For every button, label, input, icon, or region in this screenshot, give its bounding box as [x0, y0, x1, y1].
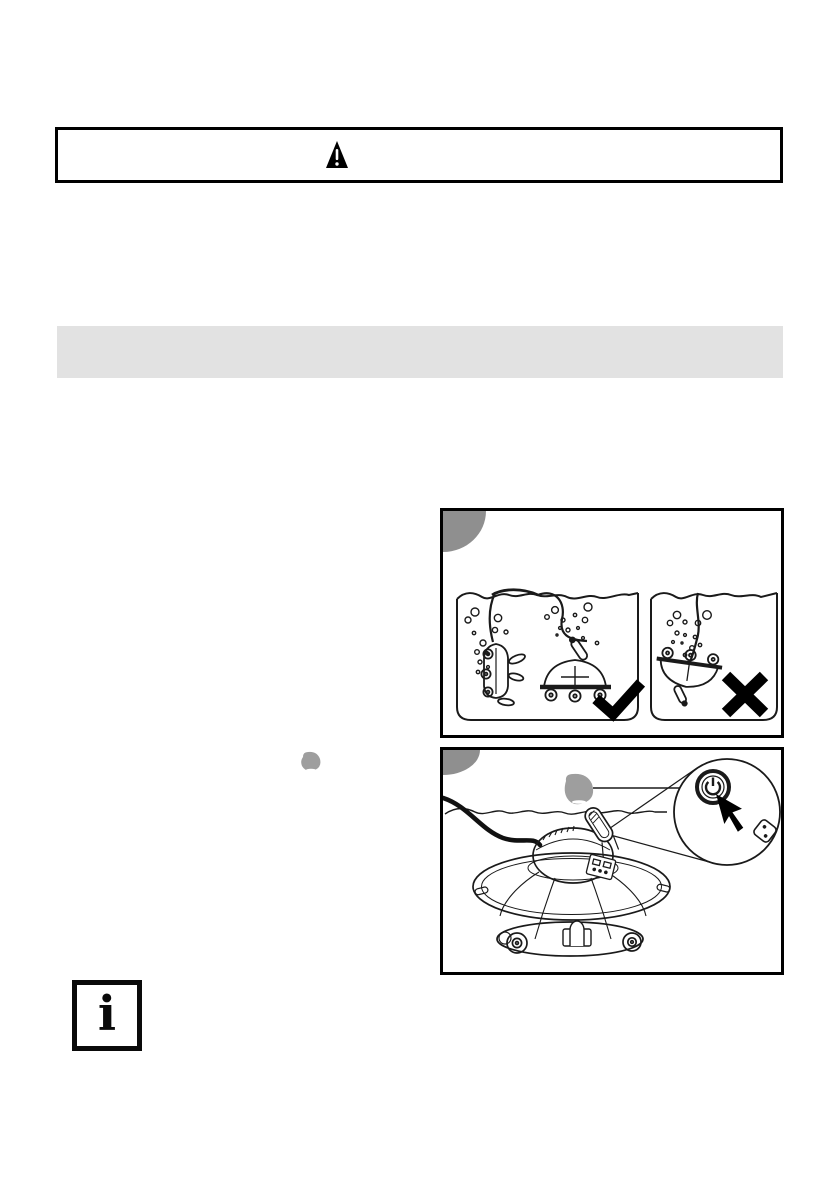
robot-on-wall [481, 644, 526, 706]
step-badge [443, 750, 480, 775]
step-badge [443, 511, 486, 552]
water-drop-icon [298, 750, 322, 772]
figure-pool-placement [440, 508, 784, 738]
warning-banner [55, 127, 783, 183]
power-cable [443, 798, 540, 845]
water-drop-icon [565, 774, 593, 804]
cross-icon [726, 676, 764, 713]
section-heading-bar [57, 326, 783, 378]
robot-correct [540, 636, 611, 702]
pool-placement-illustration [443, 511, 781, 735]
warning-triangle-icon [325, 140, 349, 170]
bubbles [465, 603, 599, 674]
power-on-illustration [443, 750, 781, 972]
figure-power-on [440, 747, 784, 975]
robot-cleaner [473, 805, 671, 956]
info-icon: i [72, 980, 142, 1051]
handle-flap [577, 805, 623, 859]
info-glyph: i [98, 990, 116, 1038]
